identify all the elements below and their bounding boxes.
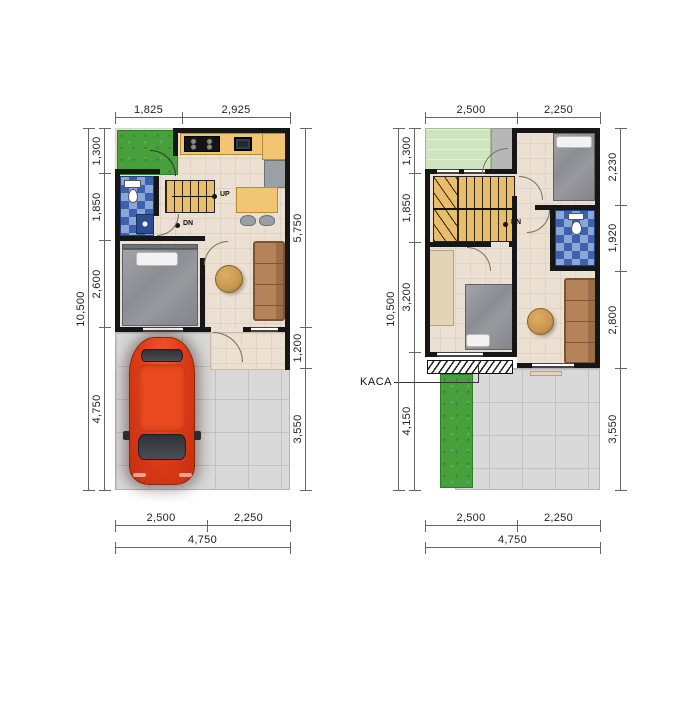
dim-label: 1,300 [91,136,103,165]
dim-label: 10,500 [75,291,87,326]
roof-garden [425,128,491,174]
dim-label: 1,825 [134,104,163,116]
dim-label: 1,300 [401,136,413,165]
wall [115,169,120,332]
dim-label: 5,750 [292,213,304,242]
dim-label: 4,750 [188,534,217,546]
wall [512,128,517,174]
stair-direction-line [172,196,214,197]
kitchen-sink [234,137,252,151]
dim-upper-left-2: 1,850 [414,173,415,242]
dim-label: 2,230 [607,152,619,181]
leader-line [394,382,478,383]
dim-ground-left-3: 2,600 [104,240,105,327]
car-windshield [138,434,186,460]
bed-pillow [466,334,490,347]
wall [115,236,205,241]
stair-divider-line [433,208,515,210]
window [143,327,183,332]
dim-label: 4,750 [498,534,527,546]
dim-upper-left-overall: 10,500 [398,128,399,490]
car-mirror [194,431,201,440]
car-roof [138,364,186,432]
glass-strip [427,360,513,374]
wall [425,169,430,357]
dim-label: 4,150 [401,406,413,435]
toilet-bowl [128,189,138,203]
dim-label: 2,250 [544,512,573,524]
dim-label: 2,600 [91,269,103,298]
upper-sofa [564,278,597,364]
dim-label: 1,850 [91,192,103,221]
ground-round-table [215,265,243,293]
upper-round-table [527,308,554,335]
toilet-bowl [571,221,582,235]
ground-sofa [253,241,285,321]
wall [595,128,600,368]
wall [173,128,178,156]
dim-label: 3,550 [292,414,304,443]
dim-upper-bottom-2: 2,250 [517,525,600,526]
upper-desk [428,250,454,326]
window [437,169,459,174]
wall [154,176,159,216]
dim-label: 1,920 [607,223,619,252]
dim-label: 2,800 [607,305,619,334]
dim-ground-left-4: 4,750 [104,327,105,490]
car-mirror [123,431,130,440]
dim-ground-bottom-1: 2,500 [115,525,207,526]
shower [136,214,154,234]
dim-label: 2,925 [221,104,250,116]
glass-label: KACA [356,376,392,388]
dining-chair [259,215,275,226]
dim-upper-bottom-1: 2,500 [425,525,517,526]
dim-label: 4,750 [91,394,103,423]
dim-ground-right-3: 3,550 [305,368,306,490]
dim-ground-top-1: 1,825 [115,117,182,118]
stair-down-dot [503,222,508,227]
terrace-bench [530,371,562,376]
dim-label: 10,500 [385,291,397,326]
stair-down-label: DN [183,220,193,227]
wall [512,247,517,352]
dim-upper-left-4: 4,150 [414,352,415,490]
stove [184,136,220,152]
dim-label: 2,500 [456,512,485,524]
dim-upper-top-1: 2,500 [425,117,517,118]
dim-upper-right-1: 2,230 [620,128,621,205]
wall [512,196,517,247]
dim-ground-left-2: 1,850 [104,173,105,240]
upper-garden-strip [440,374,473,488]
window [437,352,483,357]
dim-label: 2,250 [544,104,573,116]
toilet-tank [568,213,584,220]
dim-ground-left-1: 1,300 [104,128,105,173]
dim-ground-bottom-2: 2,250 [207,525,290,526]
dim-upper-right-2: 1,920 [620,205,621,271]
car-rear-window [141,349,183,362]
upper-terrace-paving [455,368,600,490]
wall [517,128,600,133]
dim-ground-right-2: 1,200 [305,327,306,368]
dim-label: 1,200 [292,333,304,362]
window [532,363,574,368]
dim-upper-left-3: 3,200 [414,242,415,352]
window [251,327,278,332]
wall [550,205,555,271]
dim-ground-top-2: 2,925 [182,117,290,118]
dim-label: 1,850 [401,193,413,222]
leader-line [478,364,479,383]
porch-wall [285,332,290,370]
dining-chair [240,215,256,226]
dim-label: 2,500 [456,104,485,116]
dining-table [236,187,278,213]
wall [425,242,491,247]
wall [200,258,205,332]
wall [550,266,600,271]
bed-pillow [136,252,178,266]
stair-up-label: UP [220,191,230,198]
dim-ground-bottom-overall: 4,750 [115,547,290,548]
dim-ground-right-1: 5,750 [305,128,306,327]
stair-up-dot [212,194,217,199]
dim-upper-bottom-overall: 4,750 [425,547,600,548]
dim-label: 3,550 [607,414,619,443]
dim-label: 2,250 [234,512,263,524]
dim-upper-right-3: 2,800 [620,271,621,368]
dim-label: 3,200 [401,282,413,311]
car-headlight [179,473,192,477]
wall [178,128,290,133]
dim-upper-top-2: 2,250 [517,117,600,118]
dim-ground-left-overall: 10,500 [88,128,89,490]
dim-upper-right-4: 3,550 [620,368,621,490]
bed-pillow [556,136,592,148]
dim-label: 2,500 [146,512,175,524]
car-headlight [133,473,146,477]
toilet-tank [124,180,141,188]
wall [285,128,290,332]
dim-upper-left-1: 1,300 [414,128,415,173]
